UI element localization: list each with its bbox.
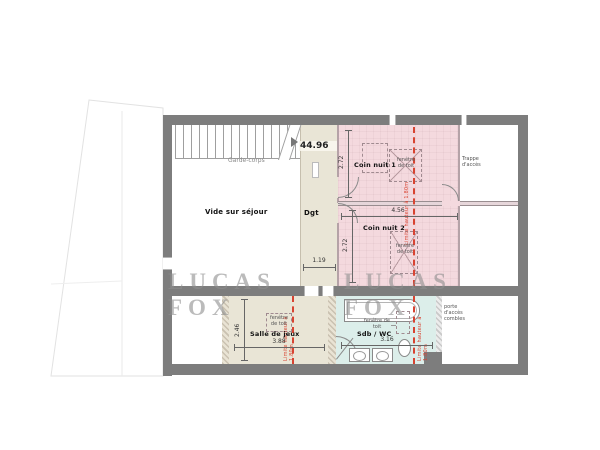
- room-label-coin-nuit-2: Coin nuit 2: [363, 225, 405, 232]
- sink-right-basin: [376, 351, 389, 361]
- left-wall-opening: [163, 257, 172, 270]
- porte-acces-combles-label: porte d'accès combles: [444, 305, 470, 322]
- wall-top: [163, 115, 528, 125]
- corridor-bedroom-wall-c: [337, 223, 339, 286]
- room-label-salle-de-jeux: Salle de jeux: [250, 331, 300, 338]
- dim-label-coin-width: 4.56: [385, 208, 411, 215]
- radiator: [312, 162, 319, 178]
- sink-right: [372, 348, 393, 362]
- playroom-left-wall: [222, 296, 229, 364]
- height-limit-line-bedrooms: [413, 127, 415, 286]
- roof-window-label-coin2: fenêtre de toit: [394, 244, 416, 256]
- sink-left-basin: [353, 351, 366, 361]
- sink-left: [349, 348, 370, 362]
- dim-label-salle-width: 3.88: [266, 339, 292, 346]
- dim-line-salle-width: [234, 347, 325, 348]
- wall-right: [518, 115, 528, 375]
- dim-line-coin1-depth: [348, 130, 349, 198]
- floor-plan-canvas: Limite hauteur à 1.80m Limite hauteur à …: [0, 0, 600, 450]
- top-wall-opening-1: [389, 115, 396, 125]
- area-value-label: 44.96: [299, 141, 337, 151]
- dim-label-coin2-depth: 2.72: [343, 230, 350, 260]
- dim-line-dgt-width: [303, 267, 336, 268]
- dim-label-coin1-depth: 2.72: [339, 147, 346, 177]
- stair-direction-arrow: [291, 137, 298, 147]
- dim-line-coin2-depth: [352, 210, 353, 283]
- roof-window-label-playroom: fenêtre de toit: [268, 316, 290, 328]
- wall-bottom: [163, 364, 528, 375]
- roof-window-bathroom: [396, 311, 410, 334]
- roof-window-label-coin1: fenêtre de toit: [394, 158, 418, 170]
- top-wall-opening-2: [461, 115, 467, 125]
- bedroom-partition-door-gap: [442, 201, 460, 206]
- dim-line-coin-width: [341, 216, 458, 217]
- dim-label-salle-depth: 2.46: [235, 315, 242, 345]
- room-label-dgt: Dgt: [304, 209, 319, 217]
- dim-label-dgt-width: 1.19: [306, 258, 332, 265]
- playroom-bathroom-wall: [328, 296, 336, 364]
- roof-window-label-bathroom: fenêtre de toit: [364, 319, 390, 331]
- room-label-coin-nuit-1: Coin nuit 1: [354, 162, 396, 169]
- wall-left: [163, 115, 172, 376]
- room-label-sdb-wc: Sdb / WC: [357, 331, 391, 338]
- garde-corps-label: Garde-corps: [228, 158, 265, 165]
- roof-window-bathroom-leader: [391, 325, 396, 326]
- wall-middle: [172, 286, 518, 296]
- room-label-vide-sejour: Vide sur séjour: [205, 208, 268, 216]
- bedroom-partition-wall: [338, 201, 518, 206]
- height-limit-label-bathroom: Limite hauteur à 1.80m: [417, 299, 429, 361]
- dim-line-sdb-width: [341, 345, 433, 346]
- height-limit-line-bathroom: [413, 296, 415, 364]
- middle-wall-opening-2: [322, 286, 334, 296]
- dim-line-salle-depth: [244, 299, 245, 361]
- middle-wall-opening-1: [304, 286, 319, 296]
- trappe-acces-label: Trappe d'accès: [462, 157, 490, 169]
